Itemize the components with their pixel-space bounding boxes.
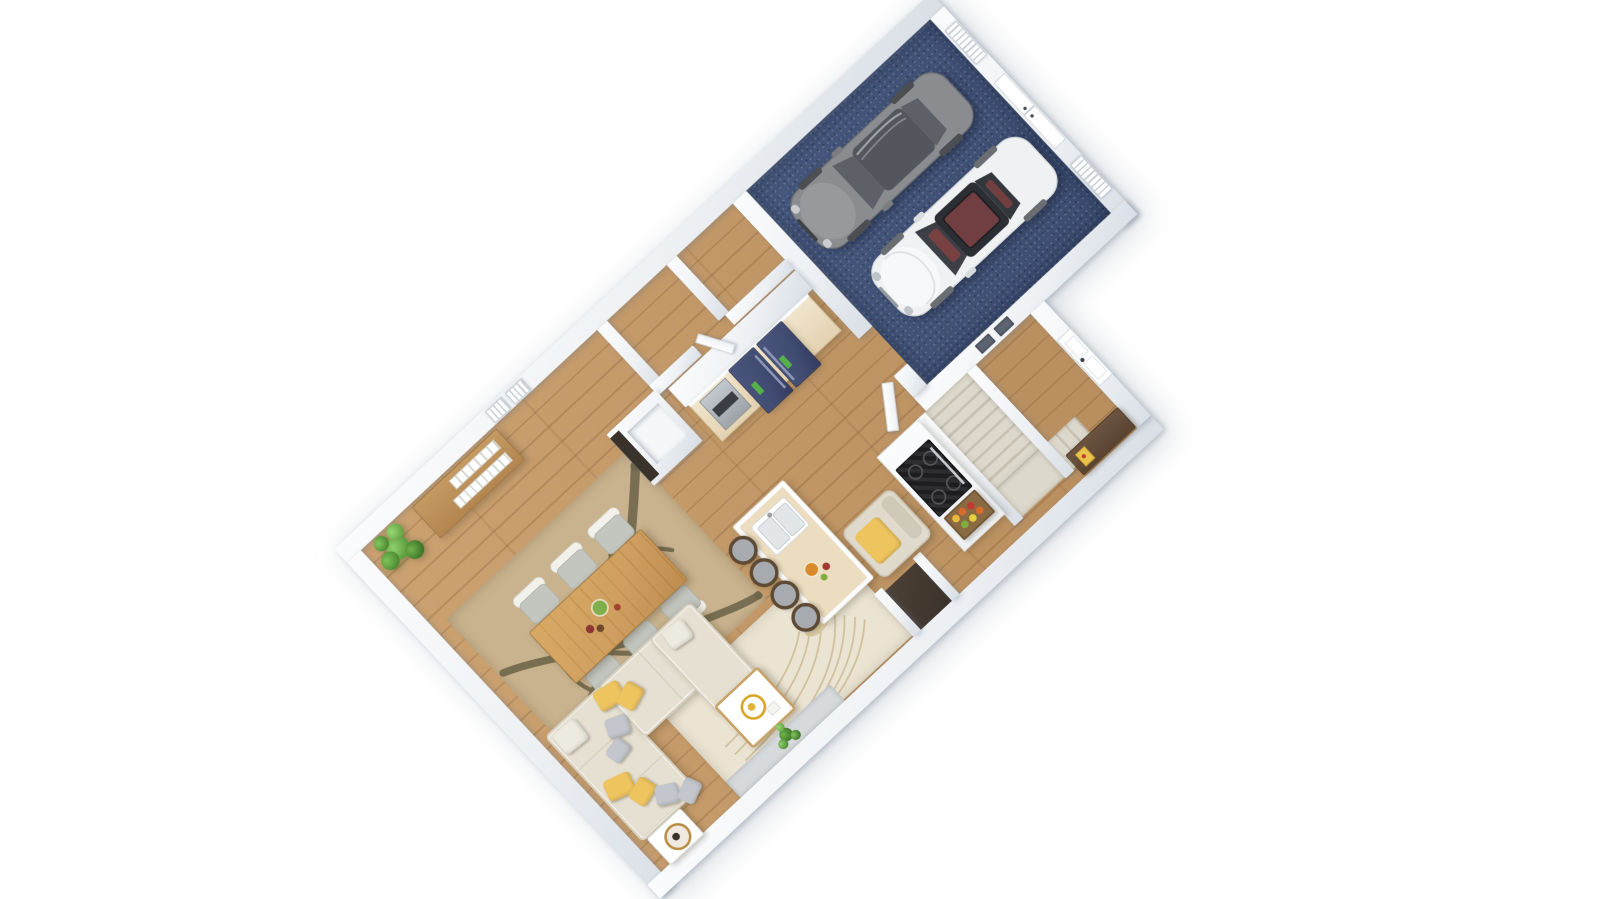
yellow-book-icon bbox=[1075, 446, 1095, 467]
centerpiece-cup-icon bbox=[595, 623, 606, 634]
book-dot bbox=[1081, 453, 1087, 459]
door-handle-icon bbox=[1030, 113, 1035, 118]
energy-label-icon bbox=[751, 381, 765, 395]
burner-icon bbox=[905, 461, 927, 483]
oven-glass bbox=[712, 391, 739, 417]
fruit-icon bbox=[974, 505, 985, 516]
centerpiece-cup-icon bbox=[584, 623, 596, 635]
burner-icon bbox=[928, 486, 950, 508]
fruit-icon bbox=[959, 519, 970, 530]
centerpiece-bowl-icon bbox=[590, 598, 610, 618]
fruit-icon bbox=[967, 513, 978, 524]
floorplan-stage bbox=[0, 0, 1600, 899]
card-icon bbox=[765, 700, 781, 716]
floor-plan bbox=[334, 0, 1255, 897]
centerpiece-cup-icon bbox=[613, 602, 623, 612]
